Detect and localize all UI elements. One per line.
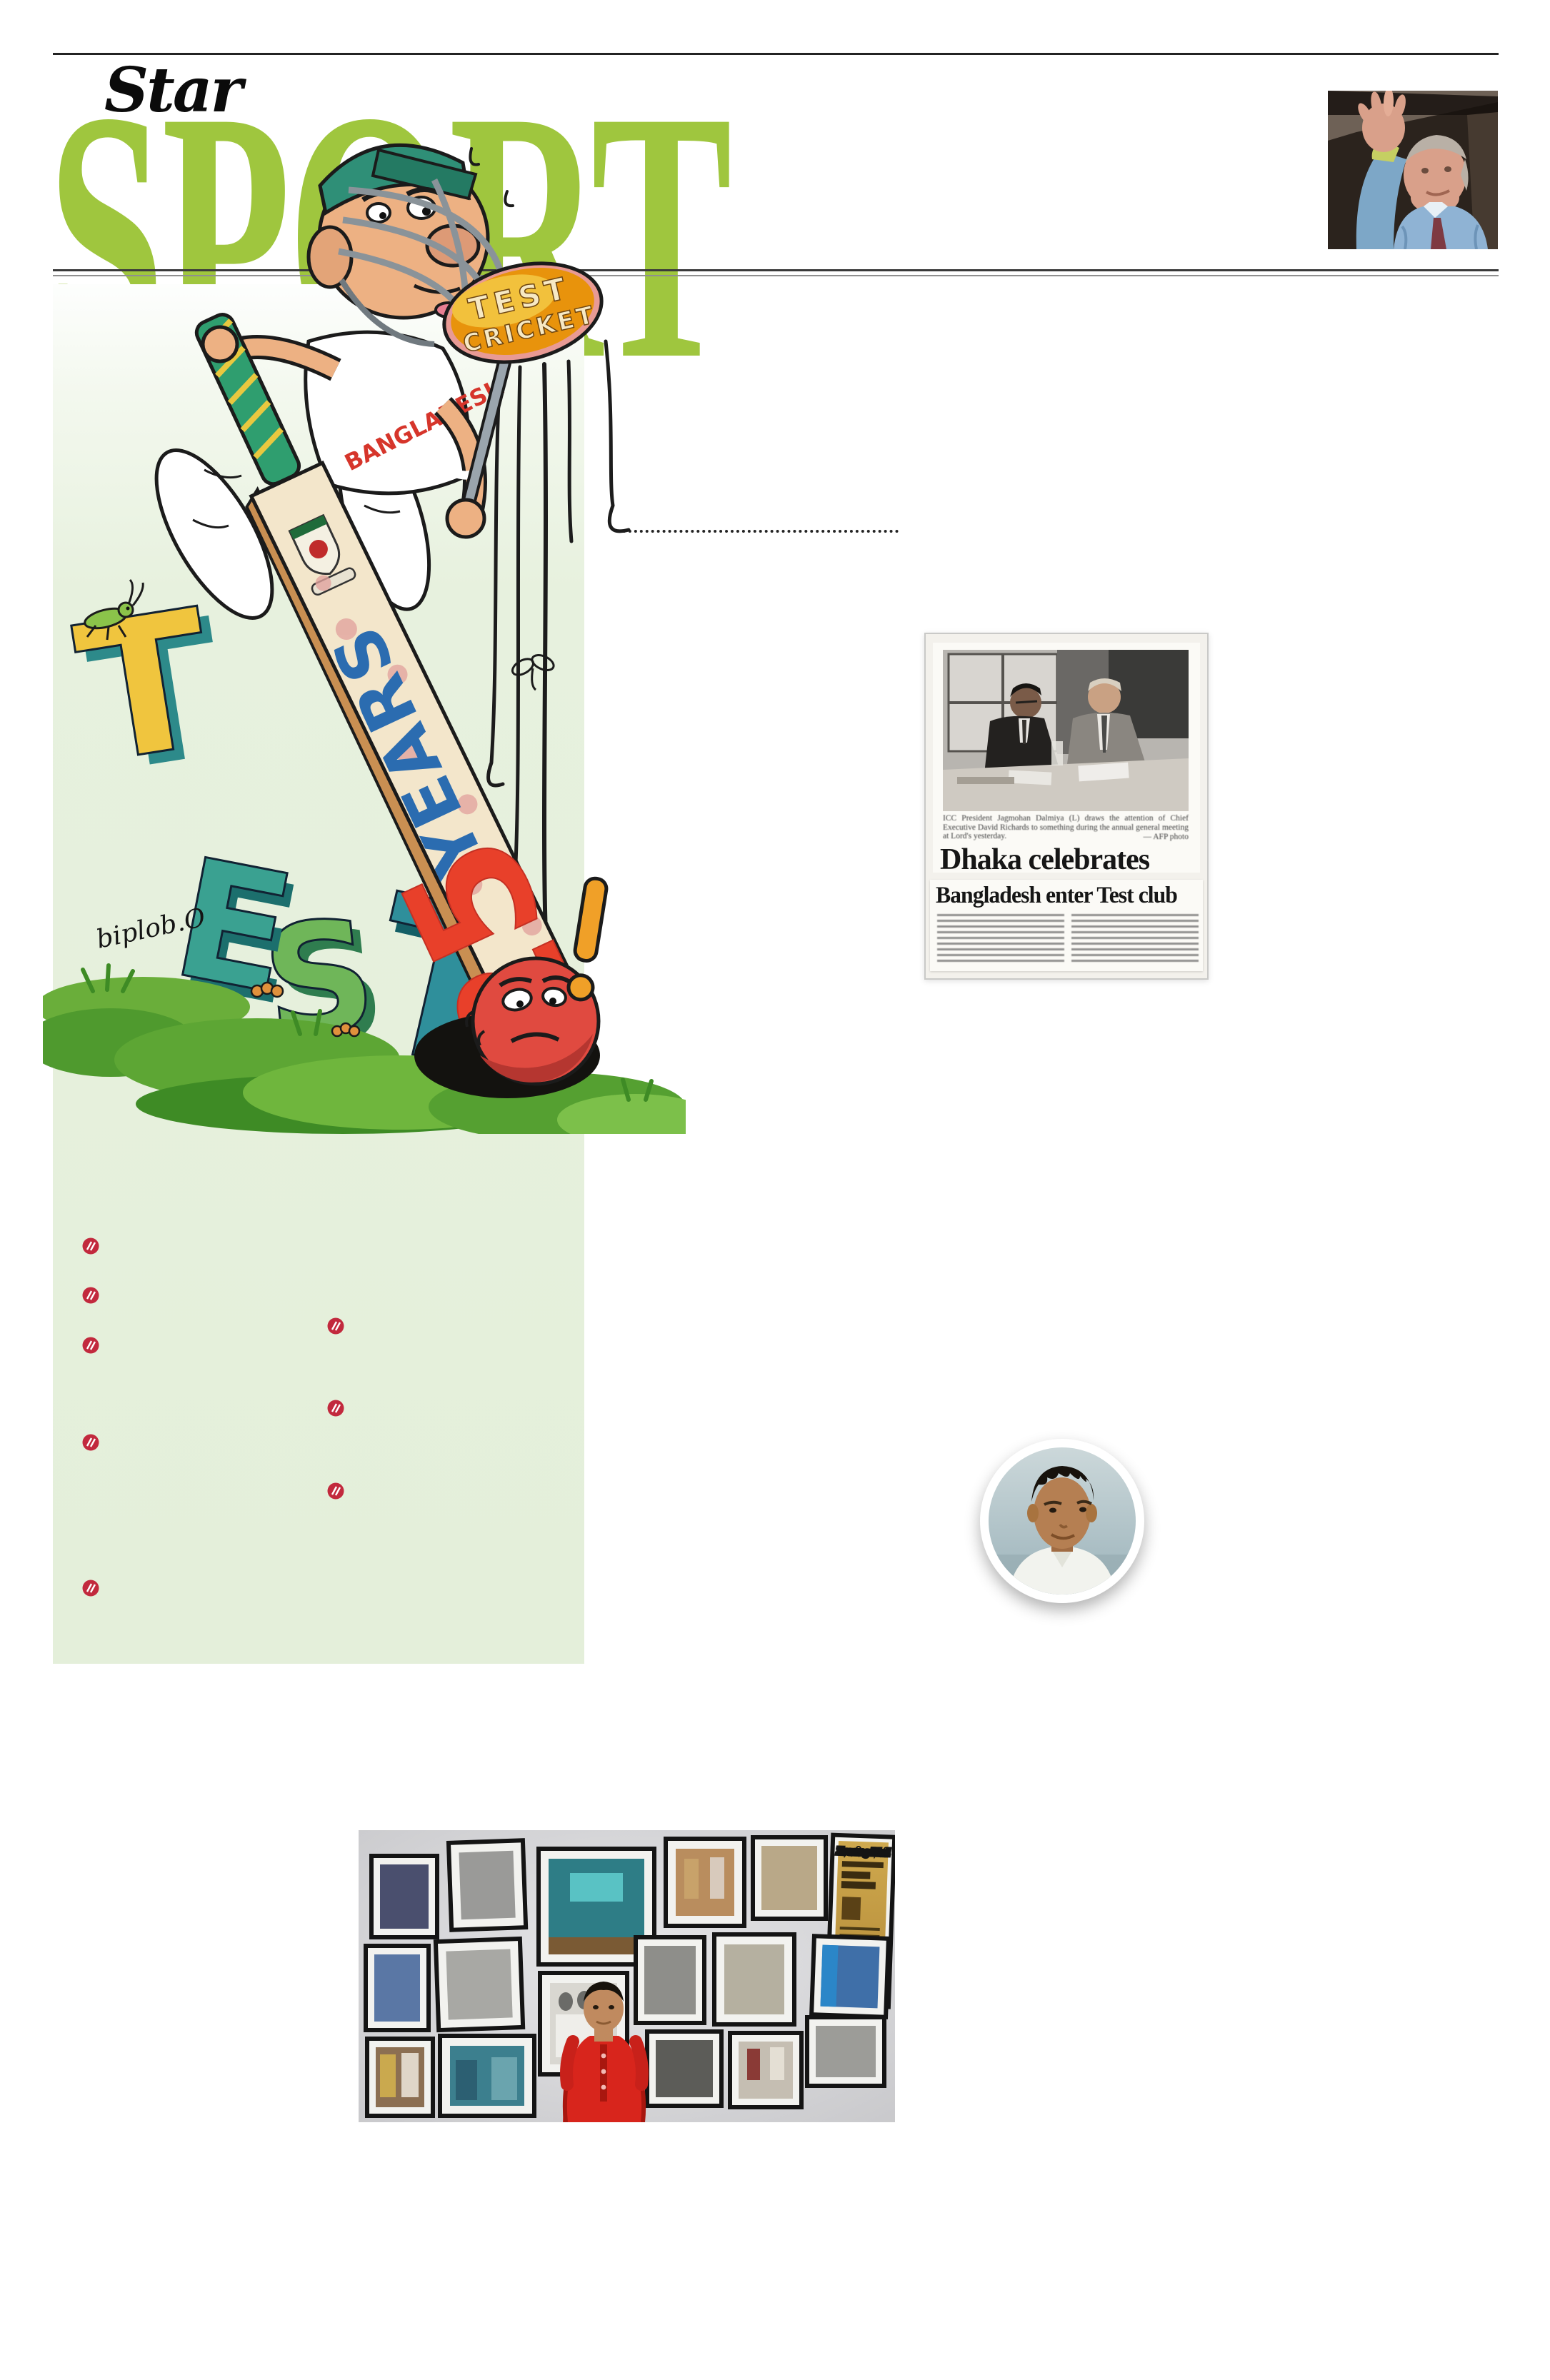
wall-frame — [807, 2017, 884, 2086]
wall-frame — [811, 1936, 889, 2017]
cricket-ball-bullet-icon — [82, 1237, 99, 1255]
clipping-dhaka-celebrates: ICC President Jagmohan Dalmiya (L) draws… — [933, 643, 1200, 873]
wall-frame — [440, 2036, 534, 2116]
wall-frame — [371, 1856, 437, 1937]
clipping-headline-secondary: Bangladesh enter Test club — [936, 883, 1191, 909]
newspaper-page: SPORT Star — [0, 0, 1550, 2380]
clipping-headline-main: Dhaka celebrates — [940, 843, 1197, 877]
clipping-photo-credit: — AFP photo — [1144, 833, 1189, 841]
wall-frame — [730, 2033, 801, 2107]
newspaper-clipping-card: ICC President Jagmohan Dalmiya (L) draws… — [924, 633, 1209, 980]
wall-frame — [449, 1840, 526, 1930]
clipping-body-text — [937, 914, 1199, 965]
cricket-ball-bullet-icon — [82, 1337, 99, 1354]
clipping-photo — [943, 650, 1189, 811]
cricket-ball-bullet-icon — [327, 1482, 344, 1500]
clipping-body-column — [1071, 914, 1199, 965]
wall-frame — [714, 1934, 794, 2024]
wall-frame — [436, 1939, 523, 2030]
cricketer-portrait — [989, 1447, 1136, 1595]
cricket-ball-bullet-icon — [82, 1434, 99, 1451]
test-cricket-cartoon: T T S S E E T T — [43, 106, 686, 1134]
wall-frame — [666, 1839, 744, 1926]
wall-frame — [753, 1837, 826, 1919]
cricket-ball-bullet-icon — [82, 1287, 99, 1304]
wall-photo-illustration: Evening Mail — [359, 1830, 895, 2122]
cricket-ball-bullet-icon — [327, 1400, 344, 1417]
wall-frame — [367, 2039, 433, 2116]
clipping-body-column — [937, 914, 1064, 965]
waving-man-illustration — [1328, 91, 1498, 249]
clipping-bangladesh-enter: Bangladesh enter Test club — [930, 880, 1203, 971]
wall-frame — [366, 1946, 429, 2030]
cricket-ball-bullet-icon — [82, 1580, 99, 1597]
cricket-ball-bullet-icon — [327, 1317, 344, 1335]
framed-photos-wall-photo: Evening Mail — [359, 1830, 895, 2122]
wall-newspaper-title: Evening Mail — [836, 1845, 890, 1858]
batsman-left-hand — [203, 327, 237, 361]
cricketer-portrait-circle — [980, 1439, 1144, 1603]
waving-man-photo — [1328, 91, 1498, 249]
wall-frame — [636, 1937, 704, 2023]
wall-frame — [647, 2032, 721, 2106]
